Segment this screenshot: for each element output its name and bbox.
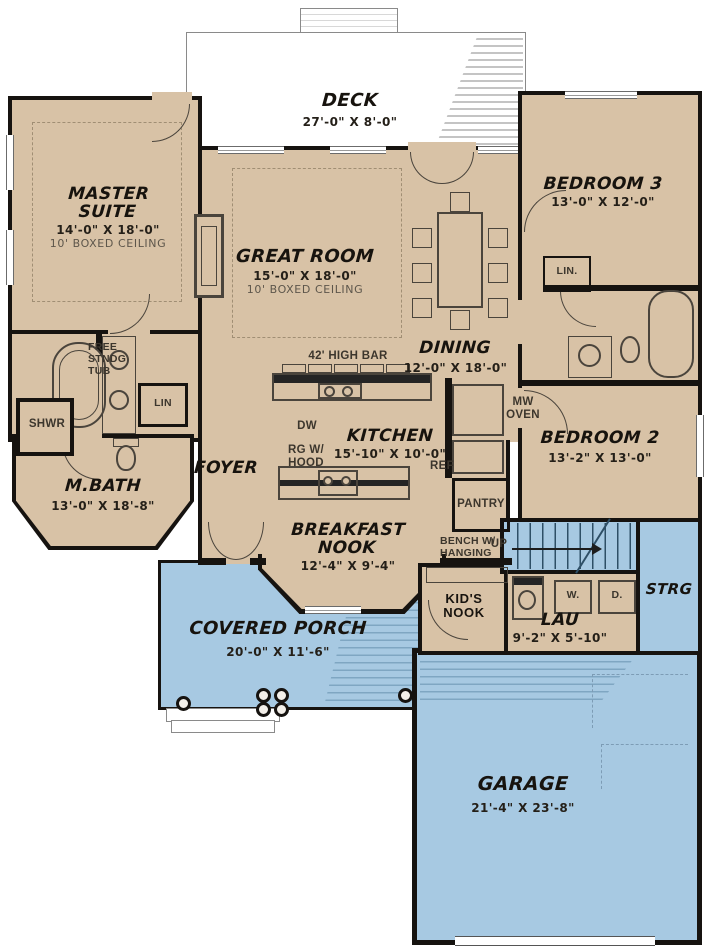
laundry-sink [518, 590, 536, 610]
porch-post [176, 696, 191, 711]
great-room-note: 10' BOXED CEILING [235, 284, 375, 297]
mw-oven-label: MW OVEN [500, 396, 546, 422]
bar-stool [282, 364, 306, 373]
bath2-sink [578, 344, 601, 367]
bath2-tub [648, 290, 694, 378]
window [696, 415, 704, 477]
dining-chair [488, 298, 508, 318]
porch-label: COVERED PORCH [177, 620, 378, 639]
hall-opening [514, 300, 526, 344]
rg-hood-label: RG W/ HOOD [280, 444, 332, 470]
bedroom2-dims: 13'-2" X 13'-0" [540, 452, 660, 466]
dining-chair [488, 228, 508, 248]
dining-chair [488, 263, 508, 283]
fireplace-inner [201, 226, 217, 286]
laundry-dims: 9'-2" X 5'-10" [505, 632, 615, 646]
island-counter-edge [274, 375, 430, 383]
dining-chair [450, 192, 470, 212]
stair-arrow-head [592, 543, 602, 555]
window [218, 146, 284, 154]
great-room-dims: 15'-0" X 18'-0" [245, 270, 365, 284]
porch-post [398, 688, 413, 703]
up-label: UP [486, 538, 512, 551]
garage-door [455, 936, 655, 946]
foyer-label: FOYER [185, 460, 266, 478]
ref-label: REF [424, 460, 460, 473]
bedroom3-dims: 13'-0" X 12'-0" [543, 196, 663, 210]
laundry-label: LAU [519, 612, 600, 630]
bar-stool [360, 364, 384, 373]
dw-label: DW [292, 420, 322, 433]
master-label: MASTER SUITE [57, 186, 159, 222]
dining-chair [412, 263, 432, 283]
kitchen-label: KITCHEN [329, 428, 450, 446]
window [6, 135, 14, 190]
window [6, 230, 14, 285]
washer-label: W. [562, 590, 584, 602]
linen-hall-label: LIN. [546, 266, 588, 278]
master-dims: 14'-0" X 18'-0" [43, 224, 173, 238]
laundry-sink-edge [514, 578, 542, 585]
stair-arrow [512, 548, 594, 550]
dining-chair [450, 310, 470, 330]
storage-label: STRG [639, 582, 698, 598]
window [330, 146, 386, 154]
dryer-label: D. [606, 590, 628, 602]
dining-chair [412, 298, 432, 318]
dining-label: DINING [404, 340, 505, 358]
linen-master-label: LIN [144, 398, 182, 410]
porch-steps [171, 720, 275, 733]
porch-post [274, 688, 289, 703]
shower-label: SHWR [24, 418, 70, 431]
burner [323, 476, 333, 486]
porch-dims: 20'-0" X 11'-6" [203, 646, 353, 660]
toilet-tank [113, 438, 139, 447]
bedroom3-label: BEDROOM 3 [537, 176, 668, 194]
dining-chair [412, 228, 432, 248]
floor-plan: DECK 27'-0" X 8'-0" MASTER SUITE 14'-0" … [0, 0, 710, 950]
free-tub-label: FREE STNDG TUB [88, 342, 138, 377]
bed2-wall [518, 380, 702, 386]
nook-dims: 12'-4" X 9'-4" [288, 560, 408, 574]
window [565, 91, 637, 99]
garage-dash-detail [601, 744, 688, 789]
pantry-label: PANTRY [450, 498, 512, 511]
deck-dims: 27'-0" X 8'-0" [280, 116, 420, 130]
stair-treads [506, 523, 650, 569]
sink-bowl [324, 386, 335, 397]
master-deck-door-opening [152, 92, 192, 104]
bedroom2-label: BEDROOM 2 [534, 430, 665, 448]
dining-table [437, 212, 483, 308]
deck-door-opening [408, 142, 476, 152]
mbath-dims: 13'-0" X 18'-8" [38, 500, 168, 514]
oven-cabinet [452, 384, 504, 436]
toilet [116, 445, 136, 471]
porch-post [274, 702, 289, 717]
porch-wall-right [250, 558, 266, 565]
bench [426, 567, 508, 583]
bar-stool [308, 364, 332, 373]
dining-dims: 12'-0" X 18'-0" [398, 362, 513, 376]
bar-stool [334, 364, 358, 373]
window [305, 606, 361, 614]
high-bar-label: 42' HIGH BAR [288, 350, 408, 363]
garage-dims: 21'-4" X 23'-8" [448, 802, 598, 816]
vanity-sink [109, 390, 129, 410]
garage-label: GARAGE [452, 775, 593, 795]
burner [341, 476, 351, 486]
window [478, 146, 518, 154]
great-room-label: GREAT ROOM [224, 248, 385, 267]
porch-post [256, 688, 271, 703]
kids-nook-label: KID'S NOOK [432, 592, 496, 619]
nook-label: BREAKFAST NOOK [289, 522, 406, 558]
mbath-label: M.BATH [47, 478, 158, 496]
garage-dash-detail [592, 674, 688, 728]
sink-bowl [342, 386, 353, 397]
porch-post [256, 702, 271, 717]
bath2-toilet [620, 336, 640, 363]
porch-wall-left [198, 558, 226, 565]
deck-label: DECK [299, 92, 400, 111]
master-note: 10' BOXED CEILING [33, 238, 183, 251]
